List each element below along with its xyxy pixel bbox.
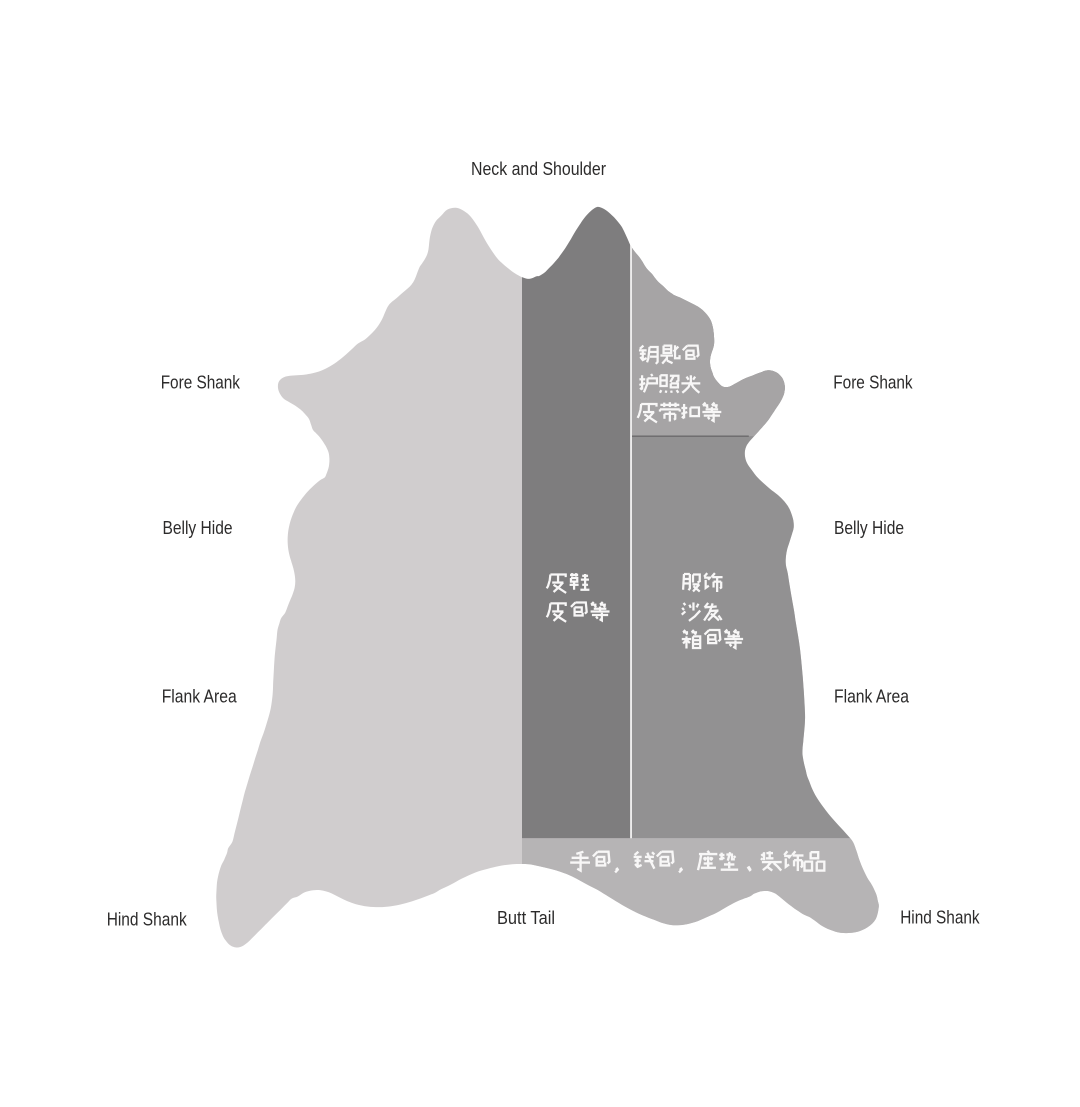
svg-text:Belly Hide: Belly Hide (834, 518, 904, 538)
svg-text:Flank Area: Flank Area (162, 687, 238, 707)
svg-text:Hind Shank: Hind Shank (900, 908, 980, 928)
svg-text:Flank Area: Flank Area (834, 687, 910, 707)
svg-text:Fore Shank: Fore Shank (161, 373, 241, 393)
svg-text:Neck and Shoulder: Neck and Shoulder (471, 159, 606, 179)
svg-text:Belly Hide: Belly Hide (163, 518, 233, 538)
svg-text:Butt Tail: Butt Tail (497, 908, 555, 928)
svg-text:Hind Shank: Hind Shank (107, 910, 188, 930)
svg-text:Fore Shank: Fore Shank (833, 373, 913, 393)
